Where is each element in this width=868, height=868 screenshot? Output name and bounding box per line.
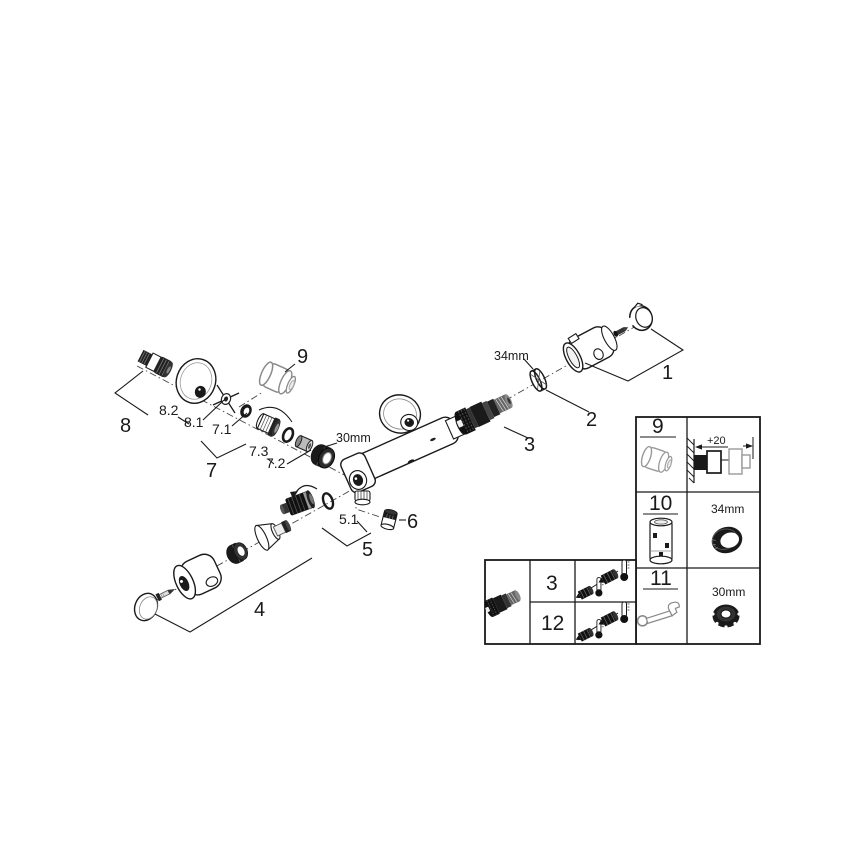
handle-screw-icon — [612, 324, 629, 337]
callout-4: 4 — [254, 599, 265, 621]
callout-8: 8 — [120, 415, 131, 437]
service-table: 3 12 — [482, 560, 636, 644]
parts-diagram-page: 8 8.2 8.1 7.1 7 7.3 7.2 9 30mm 34mm 1 2 … — [0, 0, 868, 868]
check-valve-icon — [277, 489, 316, 519]
info-row-10-detail: 34mm — [711, 502, 744, 516]
cone-adapter-icon — [252, 513, 295, 552]
callout-5: 5 — [362, 539, 373, 561]
callout-6: 6 — [407, 511, 418, 533]
callout-8-1: 8.1 — [184, 414, 204, 430]
callout-2: 2 — [586, 409, 597, 431]
exploded-parts-diagram: 8 8.2 8.1 7.1 7 7.3 7.2 9 30mm 34mm 1 2 … — [0, 0, 868, 868]
wall-escutcheon-icon — [171, 354, 222, 409]
info-row-11-ref: 11 — [650, 567, 672, 590]
collar-ring-34-icon — [528, 367, 549, 392]
handle-fix-screw-icon — [155, 586, 176, 602]
callout-7-2: 7.2 — [266, 455, 286, 471]
info-row-11-detail: 30mm — [712, 585, 745, 599]
outlet-thread-icon — [355, 491, 370, 505]
service-row-3-ref: 3 — [546, 572, 558, 595]
seal-ring-icon — [238, 402, 254, 419]
callout-7: 7 — [206, 460, 217, 482]
knurled-ring-icon — [223, 539, 250, 566]
s-union-icon — [136, 348, 174, 379]
service-row-12-ref: 12 — [541, 612, 564, 635]
callout-3: 3 — [524, 434, 535, 456]
o-ring-icon — [281, 427, 295, 443]
extension-nipple-icon — [650, 518, 672, 564]
cross-seal-icon — [213, 385, 239, 413]
thermostatic-cartridge-icon — [452, 388, 516, 436]
dim-34mm: 34mm — [494, 349, 529, 363]
dim-30mm: 30mm — [336, 431, 371, 445]
callout-9: 9 — [297, 346, 308, 368]
plug-screw-icon — [380, 508, 397, 530]
info-row-9-ref: 9 — [652, 415, 664, 438]
extension-dim-label: +20 — [707, 435, 726, 447]
callout-7-1: 7.1 — [212, 421, 232, 437]
handle-cap-icon — [623, 300, 656, 334]
info-row-10-ref: 10 — [649, 492, 672, 515]
handle-holder-icon — [558, 318, 622, 375]
info-table: 9 +20 10 — [636, 415, 760, 644]
callout-8-2: 8.2 — [159, 402, 179, 418]
callout-1: 1 — [662, 362, 673, 384]
threaded-bushing-icon — [254, 411, 282, 438]
callout-5-1: 5.1 — [339, 511, 359, 527]
flow-handle-body-icon — [169, 551, 225, 602]
o-ring-icon — [321, 492, 335, 510]
